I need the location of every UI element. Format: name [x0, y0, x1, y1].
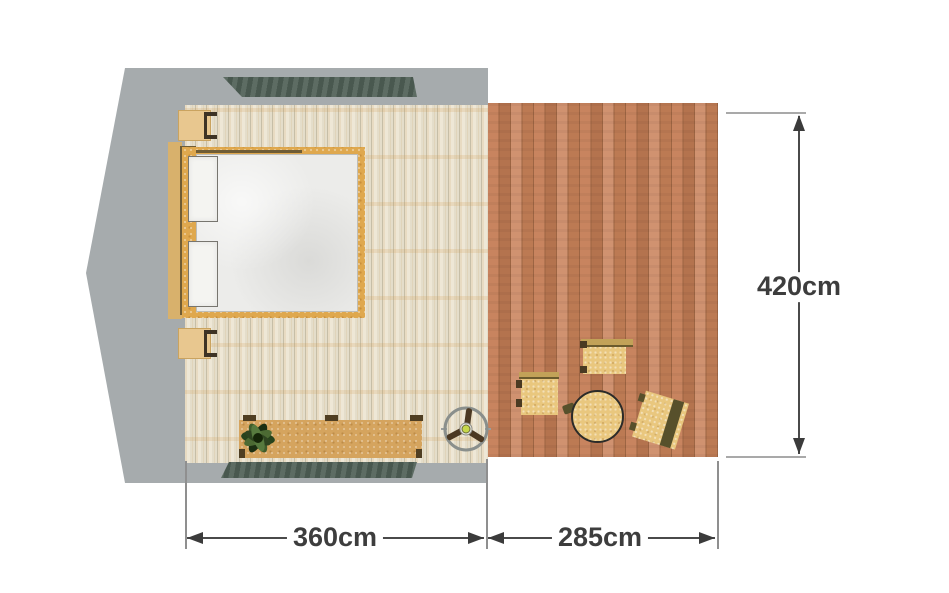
deck-width-label: 285cm	[552, 523, 648, 553]
ceiling-fan-icon[interactable]	[440, 402, 492, 456]
nightstand-legs	[204, 330, 217, 357]
extension-line	[726, 112, 806, 114]
arrow-up-icon	[793, 115, 805, 131]
arrow-left-icon	[488, 532, 504, 544]
stool-leg	[516, 380, 522, 388]
stool-leg	[580, 366, 587, 373]
nightstand-legs	[204, 112, 217, 139]
stool-1[interactable]	[583, 340, 626, 374]
stool-leg	[516, 399, 522, 407]
arrow-right-icon	[468, 532, 484, 544]
sideboard-hinge	[410, 415, 423, 421]
pillow[interactable]	[188, 156, 218, 222]
pillow[interactable]	[188, 241, 218, 307]
extension-line	[726, 456, 806, 458]
nightstand-bottom[interactable]	[178, 328, 211, 359]
floor-plan-canvas: { "annotations": { "deck_height": "420cm…	[0, 0, 949, 593]
vent-bottom-icon[interactable]	[221, 462, 417, 478]
sideboard-foot	[416, 449, 422, 458]
stool-leg	[580, 341, 587, 348]
bed-top-shadow	[196, 150, 302, 153]
vent-top-icon[interactable]	[223, 77, 417, 97]
arrow-down-icon	[793, 438, 805, 454]
round-table[interactable]	[571, 390, 624, 443]
arrow-left-icon	[187, 532, 203, 544]
nightstand-top[interactable]	[178, 110, 211, 141]
deck-height-label: 420cm	[751, 272, 847, 302]
plant-icon[interactable]	[231, 414, 285, 462]
sideboard-hinge	[325, 415, 338, 421]
extension-line	[717, 461, 719, 549]
stool-2[interactable]	[521, 374, 558, 415]
bed-mattress	[196, 154, 358, 312]
arrow-right-icon	[699, 532, 715, 544]
bedroom-width-label: 360cm	[287, 523, 383, 553]
stool-backrest	[581, 339, 633, 347]
stool-backrest	[519, 372, 559, 379]
